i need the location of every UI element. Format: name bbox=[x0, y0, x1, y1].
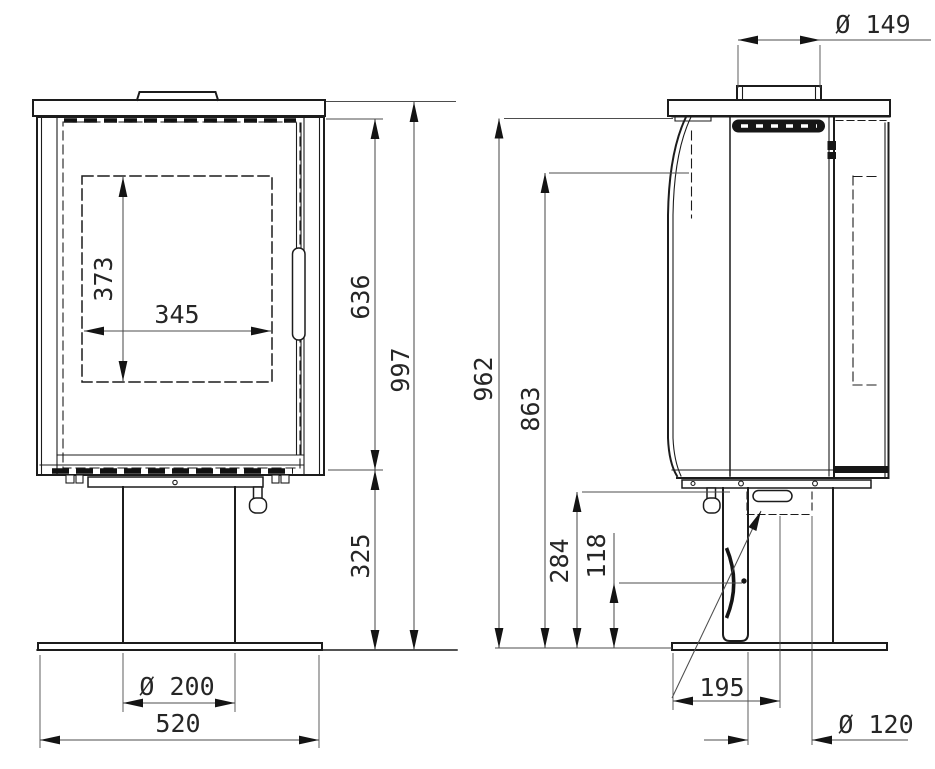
hinge-block-lower bbox=[828, 152, 837, 159]
front-bottom-plate bbox=[88, 477, 263, 487]
dim-text-overall-height: 997 bbox=[386, 347, 415, 392]
dim-text-pedestal-diameter: Ø 200 bbox=[139, 672, 214, 701]
front-view-dimensions: 373 345 636 997 325 Ø 200 bbox=[40, 102, 456, 749]
side-bottom-plate bbox=[682, 480, 871, 488]
dimension-pivot-height: 118 bbox=[582, 533, 742, 648]
dim-text-air-intake-height: 284 bbox=[545, 538, 574, 583]
front-top-plate bbox=[33, 100, 325, 116]
front-side-panels bbox=[42, 117, 320, 475]
dim-text-air-intake-offset: 195 bbox=[699, 673, 744, 702]
dim-text-flue-collar-diameter: Ø 149 bbox=[835, 10, 910, 39]
dim-text-pedestal-height: 325 bbox=[346, 533, 375, 578]
side-front-edge bbox=[668, 117, 691, 476]
dim-text-pivot-height: 118 bbox=[582, 533, 611, 578]
side-base-plate bbox=[672, 643, 887, 650]
side-air-intake bbox=[747, 491, 812, 515]
dimension-base-width: 520 bbox=[40, 655, 319, 748]
front-pedestal bbox=[123, 487, 235, 643]
hinge-block-upper bbox=[828, 141, 837, 150]
front-door-handle bbox=[293, 123, 306, 455]
front-body bbox=[37, 117, 324, 475]
dim-text-glass-height: 373 bbox=[89, 256, 118, 301]
dimension-flue-collar-diameter: Ø 149 bbox=[738, 10, 931, 88]
dimension-glass-height: 373 bbox=[89, 177, 123, 381]
air-control-pivot bbox=[741, 578, 746, 583]
front-flue-collar bbox=[137, 92, 218, 100]
dimension-glass-width: 345 bbox=[84, 300, 271, 331]
side-flue-pipe-band bbox=[732, 120, 825, 133]
technical-drawing: 373 345 636 997 325 Ø 200 bbox=[0, 0, 935, 769]
dimension-pedestal-height: 325 bbox=[346, 470, 375, 650]
side-pedestal bbox=[723, 488, 833, 643]
side-body-bottom bbox=[672, 466, 888, 488]
dim-text-air-intake-diameter: Ø 120 bbox=[838, 710, 913, 739]
dimension-air-intake-diameter: Ø 120 bbox=[704, 516, 914, 745]
dimension-air-intake-height: 284 bbox=[545, 492, 730, 648]
dim-text-base-width: 520 bbox=[155, 709, 200, 738]
stove-dimension-sheet: 373 345 636 997 325 Ø 200 bbox=[0, 0, 935, 769]
side-glass-panel bbox=[836, 121, 889, 479]
dim-text-firebox-height: 636 bbox=[346, 274, 375, 319]
dimension-air-intake-offset: 195 bbox=[673, 516, 780, 710]
front-ashpan-knob bbox=[250, 487, 267, 513]
dim-text-glass-width: 345 bbox=[154, 300, 199, 329]
dimension-firebox-height: 636 bbox=[326, 119, 383, 470]
front-base-plate bbox=[38, 643, 322, 650]
dim-text-body-top-height: 962 bbox=[469, 356, 498, 401]
side-flue-collar bbox=[737, 86, 821, 100]
side-view bbox=[668, 86, 890, 650]
side-rear-bottom-lip bbox=[833, 466, 888, 473]
side-top-plate bbox=[668, 100, 890, 116]
dimension-pedestal-diameter: Ø 200 bbox=[123, 653, 235, 712]
air-intake-slot bbox=[753, 491, 792, 502]
dim-text-flue-outlet-height: 863 bbox=[516, 386, 545, 431]
side-rear-edge bbox=[828, 117, 837, 478]
